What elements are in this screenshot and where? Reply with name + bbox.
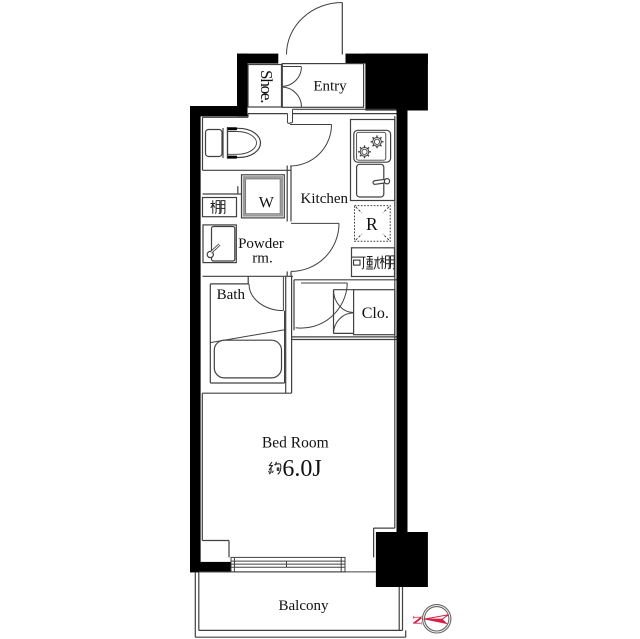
- svg-text:Bed Room: Bed Room: [262, 435, 329, 452]
- svg-text:Clo.: Clo.: [362, 305, 389, 322]
- svg-text:W: W: [259, 194, 275, 211]
- svg-text:Entry: Entry: [313, 79, 347, 95]
- svg-text:Bath: Bath: [217, 287, 246, 303]
- svg-text:6.0J: 6.0J: [282, 456, 321, 482]
- svg-text:Balcony: Balcony: [279, 598, 329, 614]
- svg-text:R: R: [366, 214, 378, 234]
- svg-text:Shoe.: Shoe.: [257, 70, 276, 103]
- svg-text:Kitchen: Kitchen: [301, 191, 349, 207]
- svg-text:rm.: rm.: [252, 250, 272, 266]
- svg-text:N: N: [410, 616, 425, 626]
